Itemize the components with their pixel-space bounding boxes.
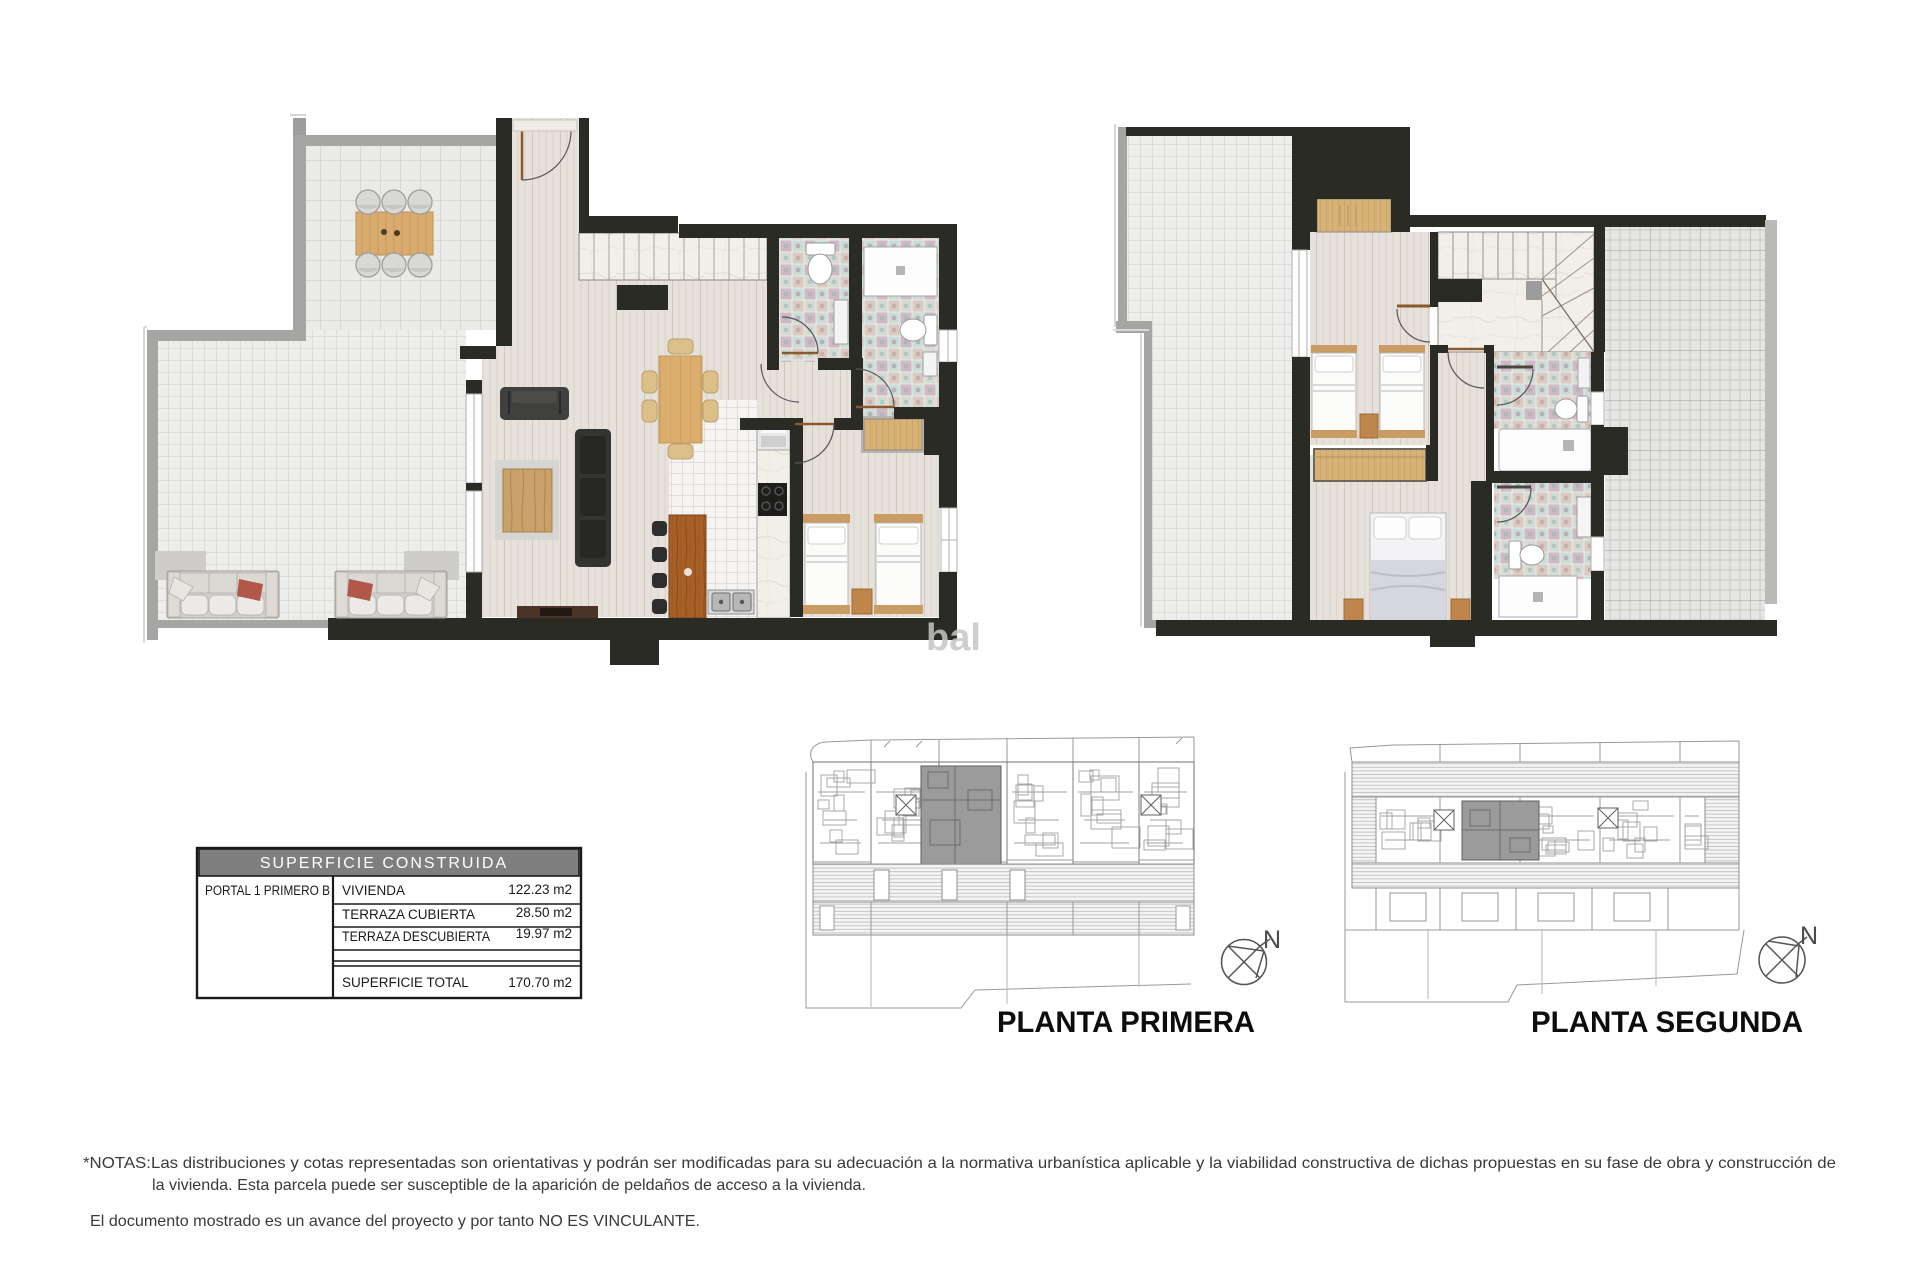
svg-text:TERRAZA CUBIERTA: TERRAZA CUBIERTA bbox=[342, 907, 475, 922]
svg-text:122.23 m2: 122.23 m2 bbox=[508, 882, 572, 897]
svg-text:PORTAL 1 PRIMERO B: PORTAL 1 PRIMERO B bbox=[205, 883, 330, 898]
svg-text:VIVIENDA: VIVIENDA bbox=[342, 883, 405, 898]
svg-text:TERRAZA DESCUBIERTA: TERRAZA DESCUBIERTA bbox=[342, 929, 490, 944]
svg-text:19.97 m2: 19.97 m2 bbox=[516, 926, 572, 941]
svg-text:PLANTA SEGUNDA: PLANTA SEGUNDA bbox=[1531, 1006, 1803, 1039]
svg-text:N: N bbox=[1263, 926, 1281, 954]
svg-text:N: N bbox=[1800, 922, 1818, 950]
svg-text:El documento mostrado es un av: El documento mostrado es un avance del p… bbox=[90, 1213, 700, 1230]
svg-text:la vivienda. Esta parcela pued: la vivienda. Esta parcela puede ser susc… bbox=[152, 1177, 866, 1194]
svg-text:170.70 m2: 170.70 m2 bbox=[508, 975, 572, 990]
svg-text:SUPERFICIE TOTAL: SUPERFICIE TOTAL bbox=[342, 975, 469, 990]
svg-text:PLANTA PRIMERA: PLANTA PRIMERA bbox=[997, 1006, 1255, 1039]
svg-text:*NOTAS:Las distribuciones y co: *NOTAS:Las distribuciones y cotas repres… bbox=[83, 1155, 1836, 1172]
svg-text:28.50 m2: 28.50 m2 bbox=[516, 905, 572, 920]
svg-text:bal: bal bbox=[926, 617, 981, 659]
svg-text:SUPERFICIE CONSTRUIDA: SUPERFICIE CONSTRUIDA bbox=[260, 855, 508, 872]
